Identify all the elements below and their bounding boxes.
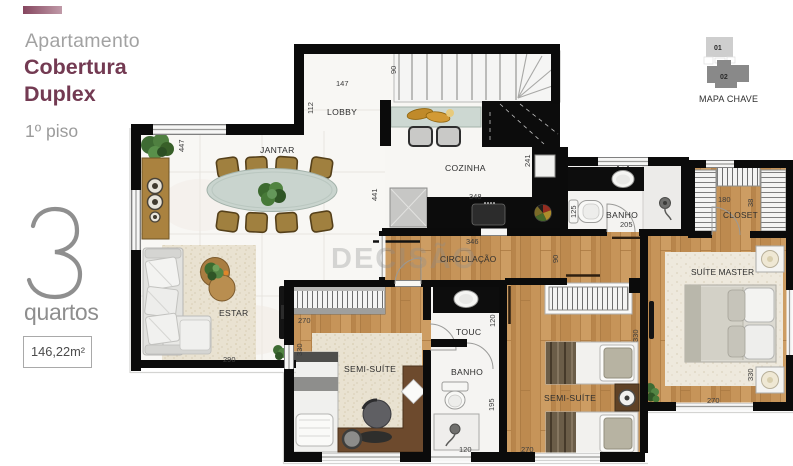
svg-text:112: 112 [306, 102, 315, 114]
svg-text:205: 205 [620, 220, 633, 229]
svg-text:348: 348 [469, 192, 482, 201]
svg-text:180: 180 [718, 195, 731, 204]
svg-text:BANHO: BANHO [606, 210, 638, 220]
svg-text:SEMI-SUÍTE: SEMI-SUÍTE [344, 364, 396, 374]
svg-text:Apartamento: Apartamento [25, 30, 140, 52]
svg-text:270: 270 [707, 396, 720, 405]
svg-text:COZINHA: COZINHA [445, 163, 486, 173]
svg-text:SUÍTE MASTER: SUÍTE MASTER [691, 267, 754, 277]
svg-text:MAPA CHAVE: MAPA CHAVE [699, 94, 758, 104]
svg-text:38: 38 [746, 199, 755, 207]
svg-text:270: 270 [521, 445, 534, 454]
svg-text:125: 125 [569, 205, 578, 218]
svg-text:quartos: quartos [24, 299, 99, 325]
svg-text:270: 270 [298, 316, 311, 325]
svg-text:447: 447 [177, 139, 186, 152]
svg-text:CIRCULAÇÃO: CIRCULAÇÃO [440, 254, 497, 264]
svg-text:SEMI-SUÍTE: SEMI-SUÍTE [544, 393, 596, 403]
svg-text:01: 01 [714, 45, 722, 52]
svg-text:441: 441 [370, 188, 379, 201]
svg-text:241: 241 [523, 154, 532, 167]
svg-text:ESTAR: ESTAR [219, 308, 249, 318]
svg-text:JANTAR: JANTAR [260, 145, 295, 155]
svg-text:195: 195 [487, 398, 496, 411]
svg-text:90: 90 [551, 255, 560, 263]
svg-text:147: 147 [336, 79, 349, 88]
svg-text:TOUC: TOUC [456, 327, 481, 337]
svg-text:CLOSET: CLOSET [723, 210, 758, 220]
svg-text:120: 120 [459, 445, 472, 454]
svg-text:LOBBY: LOBBY [327, 107, 357, 117]
svg-text:Duplex: Duplex [24, 82, 96, 106]
svg-text:90: 90 [389, 66, 398, 74]
svg-text:BANHO: BANHO [451, 367, 483, 377]
svg-text:290: 290 [223, 355, 236, 364]
svg-text:1º piso: 1º piso [25, 121, 78, 141]
svg-text:146,22m²: 146,22m² [31, 344, 86, 359]
svg-text:330: 330 [295, 343, 304, 356]
svg-text:330: 330 [631, 329, 640, 342]
svg-text:330: 330 [746, 368, 755, 381]
svg-text:02: 02 [720, 74, 728, 81]
svg-text:120: 120 [488, 314, 497, 327]
svg-text:Cobertura: Cobertura [24, 55, 128, 79]
svg-text:346: 346 [466, 237, 479, 246]
